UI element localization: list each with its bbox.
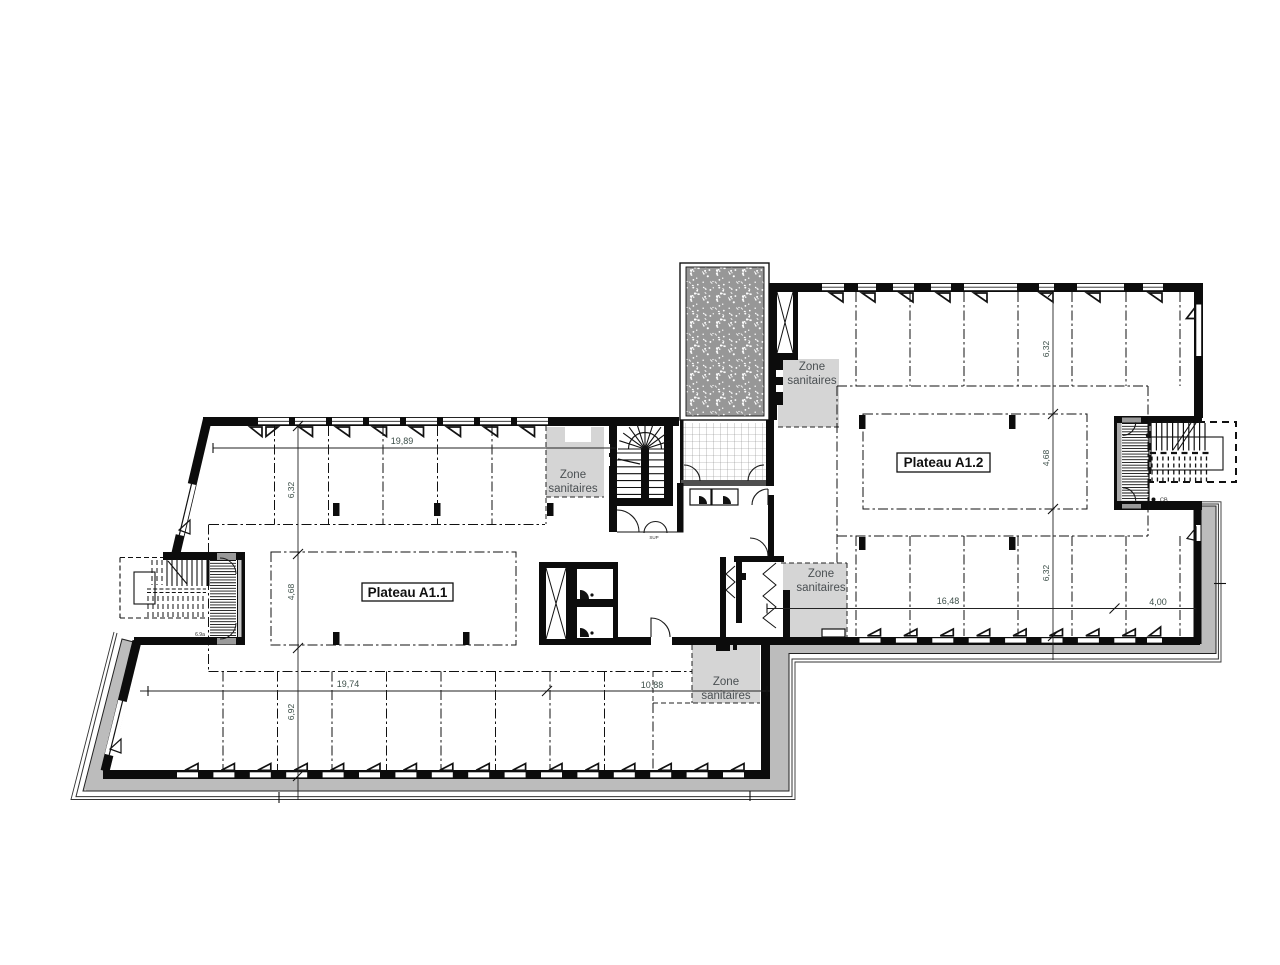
svg-text:Plateau A1.2: Plateau A1.2 <box>904 455 984 470</box>
svg-text:sanitaires: sanitaires <box>701 690 750 702</box>
svg-text:6.9a: 6.9a <box>195 632 205 638</box>
svg-text:sanitaires: sanitaires <box>796 582 845 594</box>
svg-text:6,32: 6,32 <box>286 481 296 498</box>
svg-text:19,89: 19,89 <box>391 436 414 446</box>
svg-text:6,92: 6,92 <box>286 703 296 720</box>
svg-text:4,68: 4,68 <box>286 583 296 600</box>
svg-text:Zone: Zone <box>808 568 834 580</box>
svg-text:6,32: 6,32 <box>1041 340 1051 357</box>
svg-text:4,68: 4,68 <box>1041 449 1051 466</box>
svg-text:SUP: SUP <box>649 535 658 540</box>
svg-text:sanitaires: sanitaires <box>548 483 597 495</box>
svg-text:CB: CB <box>1160 498 1168 504</box>
svg-text:10,88: 10,88 <box>641 680 664 690</box>
svg-text:6,32: 6,32 <box>1041 564 1051 581</box>
svg-text:sanitaires: sanitaires <box>787 375 836 387</box>
svg-text:19,74: 19,74 <box>337 679 360 689</box>
svg-text:Plateau A1.1: Plateau A1.1 <box>368 585 448 600</box>
svg-text:16,48: 16,48 <box>937 596 960 606</box>
svg-text:Zone: Zone <box>560 469 586 481</box>
svg-text:Zone: Zone <box>799 361 825 373</box>
svg-text:Zone: Zone <box>713 676 739 688</box>
svg-text:4,00: 4,00 <box>1149 597 1167 607</box>
